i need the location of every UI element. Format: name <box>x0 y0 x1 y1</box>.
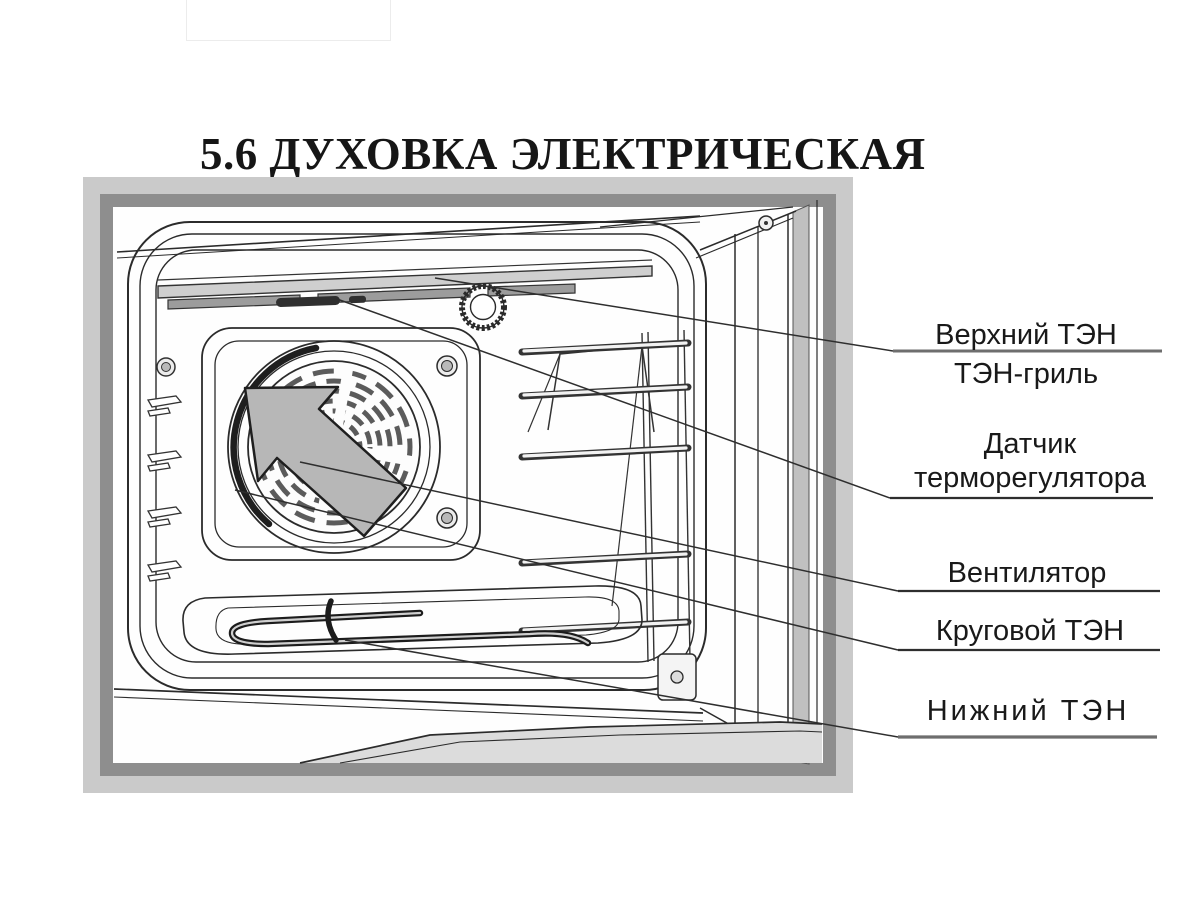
callout-upper-heater: Верхний ТЭН ТЭН-гриль <box>935 318 1117 391</box>
callout-fan: Вентилятор <box>948 556 1107 590</box>
screw-icon <box>437 508 457 528</box>
callout-circular-heater: Круговой ТЭН <box>936 614 1124 648</box>
callout-thermostat-sensor-line1: Датчик <box>914 427 1146 461</box>
callout-circular-heater-line1: Круговой ТЭН <box>936 614 1124 648</box>
callout-upper-heater-line1: Верхний ТЭН <box>935 318 1117 352</box>
screw-icon <box>437 356 457 376</box>
callout-upper-heater-line2: ТЭН-гриль <box>935 357 1117 391</box>
callout-lower-heater: Нижний ТЭН <box>927 694 1130 728</box>
screw-icon <box>759 216 773 230</box>
callout-fan-line1: Вентилятор <box>948 556 1107 590</box>
screw-icon <box>157 358 175 376</box>
door-hinge <box>658 654 696 700</box>
callout-lower-heater-line1: Нижний ТЭН <box>927 694 1130 728</box>
callout-thermostat-sensor-line2: терморегулятора <box>914 461 1146 495</box>
callout-thermostat-sensor: Датчик терморегулятора <box>914 427 1146 495</box>
